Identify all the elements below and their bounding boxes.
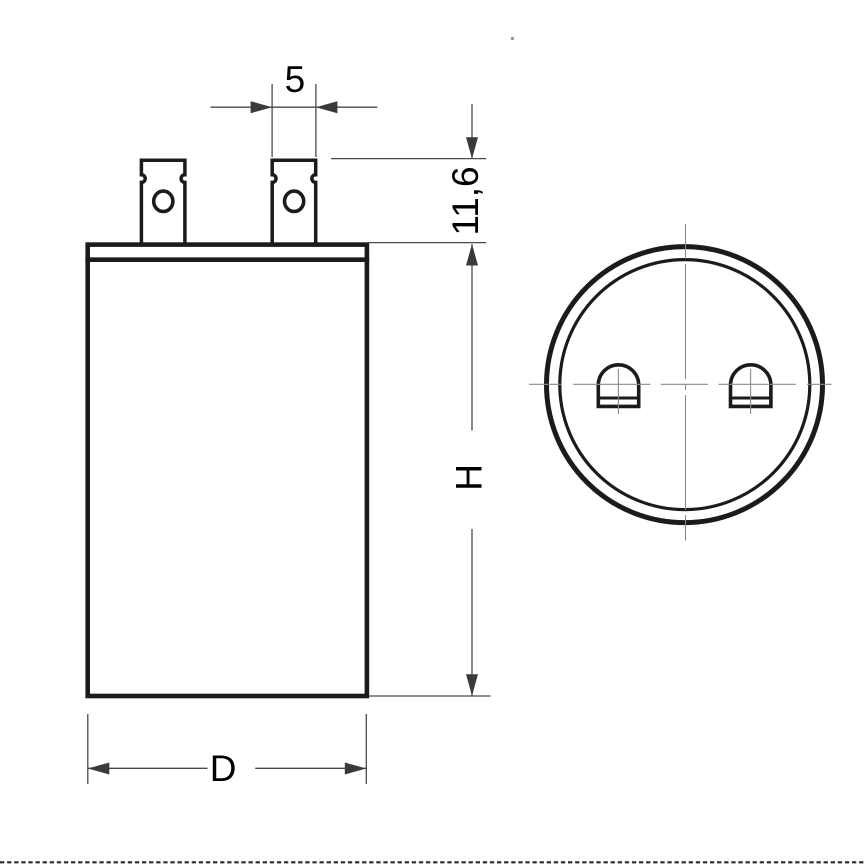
svg-text:D: D [210, 748, 237, 789]
svg-text:11,6: 11,6 [445, 166, 486, 235]
svg-text:5: 5 [285, 59, 306, 100]
svg-text:H: H [449, 464, 490, 491]
